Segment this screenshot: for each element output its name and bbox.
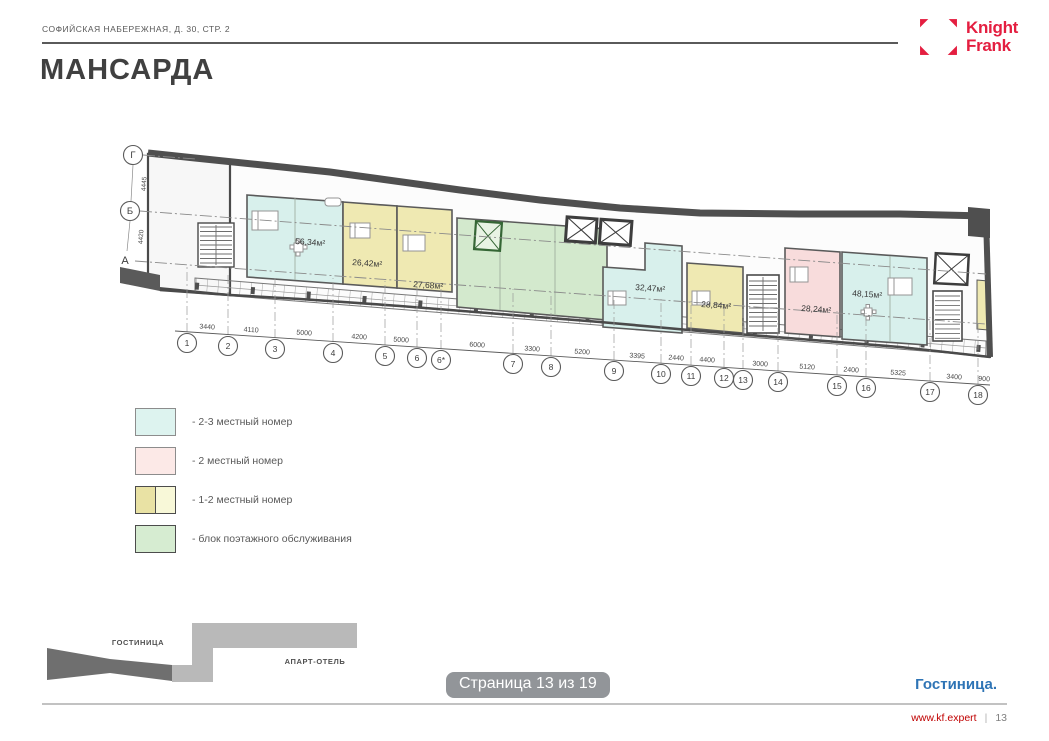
column-bubble: 12 [719,373,729,383]
dim-label: 900 [978,376,990,384]
dim-label: 4110 [243,327,259,335]
column-bubble: 16 [861,383,871,393]
column-bubble: 9 [612,366,617,376]
floor-plan: Г Б А 4445 4420 56,34м² 26,42м² 27,68м² … [100,95,1010,420]
minimap-apart-shape [172,623,357,682]
dim-label: 5200 [574,348,590,356]
column-bubble: 1 [185,338,190,348]
legend-item: - блок поэтажного обслуживания [135,525,352,553]
room-48-15 [842,252,927,345]
room-26-42 [343,202,397,288]
column-bubble: 6* [437,355,446,365]
knight-frank-logo-icon [918,16,959,57]
column-bubble: 10 [656,369,666,379]
grid-letter: А [121,255,129,267]
logo-text: Knight Frank [966,19,1018,54]
grid-letter: Г [130,150,135,161]
grid-letter: Б [127,206,133,217]
grid-letters: Г Б А 4445 4420 [121,146,149,268]
dim-label: 4400 [699,356,715,364]
logo-line2: Frank [966,37,1018,55]
column-bubble: 13 [738,375,748,385]
footer-rule [42,703,1007,705]
dim-label: 3440 [199,323,215,331]
footer-site-link[interactable]: www.kf.expert [911,712,976,724]
dim-label: 5325 [890,369,906,377]
legend-item: - 1-2 местный номер [135,486,352,514]
legend-label: - 2 местный номер [192,455,283,467]
footer: www.kf.expert | 13 [911,712,1007,724]
area-label: 32,47м² [635,282,666,294]
column-bubble: 14 [773,377,783,387]
dim-label: 3395 [629,352,645,360]
logo-line1: Knight [966,19,1018,37]
dim-label: 5000 [296,329,312,337]
page-badge: Страница 13 из 19 [446,672,610,698]
column-bubble: 7 [511,359,516,369]
dim-label: 5120 [799,363,815,371]
minimap: ГОСТИНИЦА АПАРТ-ОТЕЛЬ [40,612,380,702]
dim-label: 3300 [524,345,540,353]
legend: - 2-3 местный номер - 2 местный номер - … [135,408,352,564]
dim-label: 2400 [843,366,859,374]
column-bubble: 11 [687,371,696,381]
knight-frank-logo: Knight Frank [918,16,1018,57]
legend-swatch-2-bed [135,447,176,475]
area-label: 28,24м² [801,303,832,315]
area-label: 28,84м² [701,299,732,311]
column-bubble: 17 [925,387,935,397]
footer-page-number: 13 [995,712,1007,724]
minimap-hotel-label: ГОСТИНИЦА [112,638,164,647]
page: СОФИЙСКАЯ НАБЕРЕЖНАЯ, Д. 30, СТР. 2 Knig… [0,0,1049,741]
legend-swatch-2-3-bed [135,408,176,436]
legend-swatch-half-light [156,487,176,513]
column-bubble: 3 [273,344,278,354]
area-label: 56,34м² [295,236,326,248]
legend-item: - 2 местный номер [135,447,352,475]
column-bubble: 2 [226,341,231,351]
dim-label: 3400 [946,373,962,381]
column-bubble: 6 [415,353,420,363]
column-bubble: 18 [973,390,983,400]
section-label: Гостиница. [915,676,997,693]
left-dim: 4420 [138,229,146,244]
column-bubble: 5 [383,351,388,361]
legend-swatch-service [135,525,176,553]
area-label: 26,42м² [352,257,383,269]
footer-separator: | [985,712,988,724]
column-bubble: 4 [331,348,336,358]
legend-label: - блок поэтажного обслуживания [192,533,352,545]
dim-label: 2440 [668,354,684,362]
legend-item: - 2-3 местный номер [135,408,352,436]
legend-label: - 1-2 местный номер [192,494,292,506]
minimap-hotel-shape [47,648,172,681]
area-label: 27,68м² [413,279,444,291]
room-28-24 [785,248,840,337]
dim-label: 5000 [393,336,409,344]
left-dim: 4445 [141,176,149,191]
legend-label: - 2-3 местный номер [192,416,292,428]
area-label: 48,15м² [852,288,883,300]
dim-label: 6000 [469,341,485,349]
dim-label: 3000 [752,360,768,368]
dim-label: 4200 [351,333,367,341]
column-bubble: 15 [832,381,842,391]
header-address: СОФИЙСКАЯ НАБЕРЕЖНАЯ, Д. 30, СТР. 2 [42,24,230,34]
minimap-apart-label: АПАРТ-ОТЕЛЬ [285,657,346,666]
header-rule [42,42,898,44]
column-bubble: 8 [549,362,554,372]
legend-swatch-1-2-bed [135,486,176,514]
page-title: МАНСАРДА [40,54,214,87]
legend-swatch-half-dark [136,487,156,513]
